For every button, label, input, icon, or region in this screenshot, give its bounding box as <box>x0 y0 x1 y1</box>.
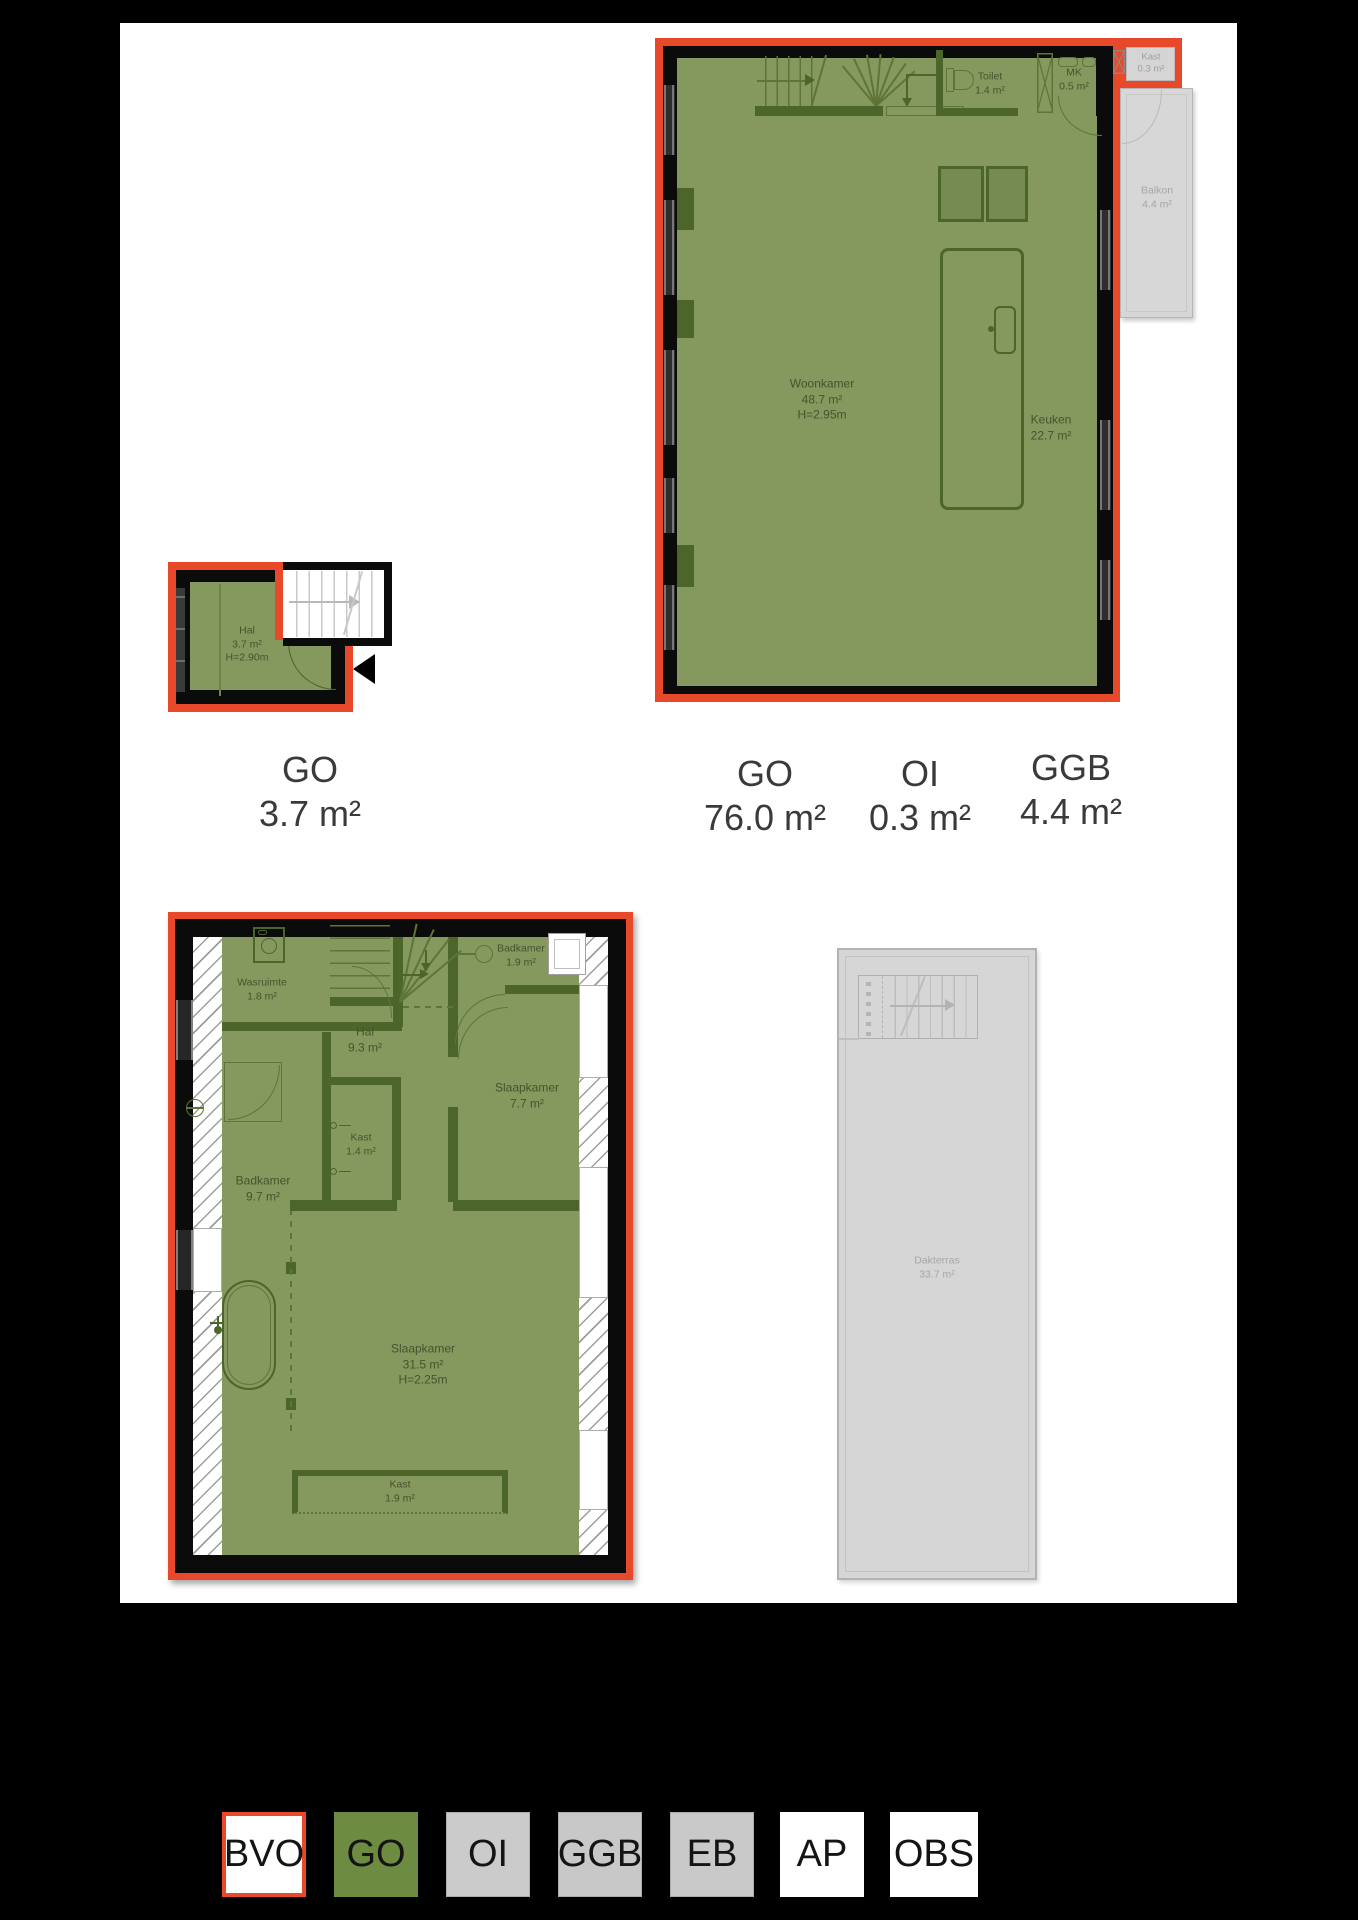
stair-dashed-column <box>866 978 871 1036</box>
room-label-balkon: Balkon 4.4 m² <box>1141 184 1173 211</box>
window-sill <box>677 545 694 587</box>
window <box>664 585 675 650</box>
room-label-toilet: Toilet 1.4 m² <box>975 70 1005 97</box>
stair-dashed-line <box>882 976 883 1038</box>
kitchen-island <box>940 248 1024 510</box>
toilet-icon <box>954 70 974 90</box>
room-label-dakterras: Dakterras 33.7 m² <box>914 1254 960 1281</box>
washer-door <box>261 938 277 954</box>
wall-segment <box>331 1077 392 1085</box>
toilet-icon <box>946 68 954 92</box>
legend-label: GO <box>346 1833 405 1876</box>
legend-label: OI <box>468 1833 508 1876</box>
caption-go-ground-floor: GO 3.7 m² <box>210 748 410 836</box>
window <box>1100 560 1111 620</box>
window <box>664 85 675 155</box>
room-label-badkamer-small: Badkamer 1.9 m² <box>497 942 545 969</box>
window <box>579 1430 608 1510</box>
room-label-woonkamer: Woonkamer 48.7 m² H=2.95m <box>790 377 854 424</box>
legend-label: AP <box>797 1833 848 1876</box>
legend-item-bvo: BVO <box>222 1812 306 1897</box>
slider-symbol <box>339 1125 351 1126</box>
room-label-slaapkamer-small: Slaapkamer 7.7 m² <box>495 1080 559 1111</box>
sink-icon <box>994 306 1016 354</box>
stair-down-line <box>425 950 427 964</box>
window <box>193 1228 222 1292</box>
wall-segment <box>219 584 221 696</box>
duct-column <box>1037 53 1053 113</box>
stair-connector-line <box>839 1038 859 1040</box>
entrance-marker <box>353 654 375 684</box>
legend-label: OBS <box>894 1833 974 1876</box>
room-label-wasruimte: Wasruimte 1.8 m² <box>237 976 287 1003</box>
faucet-icon <box>217 1316 219 1330</box>
shower-arm <box>458 953 476 955</box>
stair-arrow-line <box>757 80 807 82</box>
caption-ggb-first-floor: GGB 4.4 m² <box>971 746 1171 834</box>
go-area-fill <box>677 58 1097 686</box>
room-label-keuken: Keuken 22.7 m² <box>1031 412 1072 443</box>
stair-landing-band <box>755 106 883 116</box>
slider-symbol <box>339 1171 351 1172</box>
wall-segment <box>936 50 943 116</box>
kitchen-appliance <box>938 166 984 222</box>
slider-symbol <box>330 1122 337 1129</box>
legend-item-ggb: GGB <box>558 1812 642 1897</box>
legend-item-eb: EB <box>670 1812 754 1897</box>
wall-segment <box>453 1200 579 1211</box>
stair-arrow-line <box>289 601 349 603</box>
kitchen-appliance <box>986 166 1028 222</box>
window <box>176 1230 193 1290</box>
window <box>1100 210 1111 290</box>
stair-down-line <box>906 74 940 76</box>
window <box>664 200 675 295</box>
stair-arrow-head <box>805 74 815 86</box>
room-label-kast: Kast 0.3 m² <box>1138 52 1165 77</box>
window <box>176 588 185 692</box>
legend-item-ap: AP <box>780 1812 864 1897</box>
window <box>664 478 675 533</box>
shower-icon <box>475 945 493 963</box>
floorplan-sheet: Hal 3.7 m² H=2.90m GO 3.7 m² <box>0 0 1358 1920</box>
window-sill <box>677 188 694 230</box>
wall-segment <box>290 1200 397 1211</box>
legend-label: EB <box>687 1833 738 1876</box>
room-label-hal: Hal 3.7 m² H=2.90m <box>226 625 269 666</box>
room-label-kast-small: Kast 1.4 m² <box>346 1131 376 1158</box>
legend-label: GGB <box>558 1833 642 1876</box>
wall-segment <box>1096 46 1113 116</box>
room-label-badkamer-large: Badkamer 9.7 m² <box>236 1173 291 1204</box>
legend-label: BVO <box>224 1833 304 1876</box>
wall-segment <box>936 108 1018 116</box>
window <box>664 350 675 445</box>
room-label-kast-large: Kast 1.9 m² <box>385 1478 415 1505</box>
stair-down-line <box>906 74 908 98</box>
window <box>579 1167 608 1298</box>
legend-item-go: GO <box>334 1812 418 1897</box>
wall-segment <box>322 1032 331 1200</box>
legend-item-obs: OBS <box>890 1812 978 1897</box>
slider-symbol <box>330 1168 337 1175</box>
shower-tray-inner <box>554 939 580 969</box>
stair-arrow-head <box>945 999 955 1011</box>
window <box>579 985 608 1078</box>
stair-treads <box>884 976 976 1038</box>
stair-down-arrow <box>421 963 431 972</box>
room-label-mk: MK 0.5 m² <box>1059 66 1089 93</box>
wall-segment <box>505 985 579 994</box>
wall-segment <box>393 937 403 1027</box>
partition-dashed-line <box>290 1211 292 1431</box>
window <box>1100 420 1111 510</box>
faucet-icon <box>988 326 994 332</box>
stair-arrow-line <box>890 1005 946 1007</box>
stair-dashed-line <box>403 1006 453 1008</box>
window <box>176 1000 193 1060</box>
room-label-slaapkamer-large: Slaapkamer 31.5 m² H=2.25m <box>391 1342 455 1389</box>
room-label-hal: Hal 9.3 m² <box>348 1024 382 1055</box>
wall-segment <box>448 1107 458 1202</box>
washer-knob <box>258 930 267 935</box>
window-sill <box>677 300 694 338</box>
stair-arrow-line <box>393 974 421 976</box>
bathtub-inner <box>227 1285 271 1385</box>
stair-treads <box>285 571 382 637</box>
legend-item-oi: OI <box>446 1812 530 1897</box>
shower-arm <box>186 1107 204 1109</box>
duct-column <box>1113 50 1125 74</box>
wall-segment <box>392 1077 401 1200</box>
